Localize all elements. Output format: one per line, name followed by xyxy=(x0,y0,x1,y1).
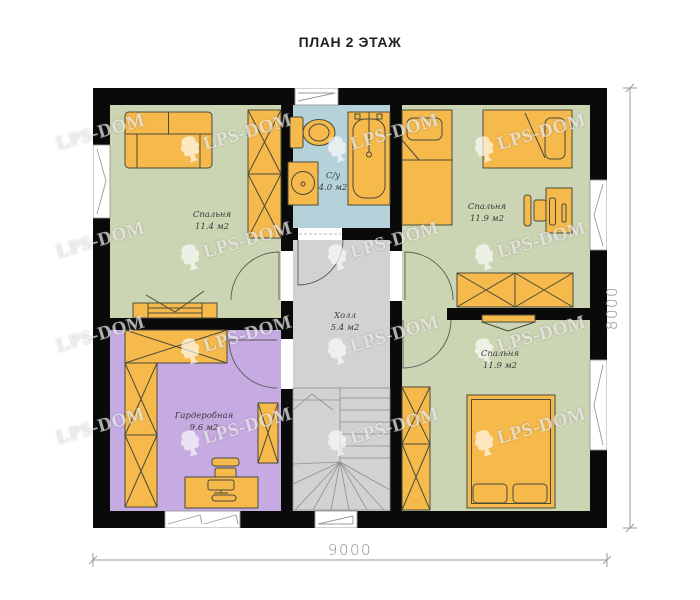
window-icon xyxy=(590,360,607,450)
plan-title: ПЛАН 2 ЭТАЖ xyxy=(299,34,402,50)
wardrobe-icon xyxy=(125,330,227,363)
room-label-bedroom-top-left: Спальня 11.4 м2 xyxy=(193,210,231,234)
wardrobe-icon xyxy=(248,110,281,238)
wardrobe-icon xyxy=(125,363,157,507)
plan-details xyxy=(93,88,607,528)
door-arc xyxy=(229,340,277,388)
room-label-bedroom-bottom-right: Спальня 11.9 м2 xyxy=(481,349,519,373)
stairs-icon xyxy=(293,388,390,510)
window-icon xyxy=(295,88,338,105)
sink-icon xyxy=(288,162,318,205)
wardrobe-icon xyxy=(402,387,430,510)
door-arc xyxy=(403,320,451,368)
room-label-wardrobe: Гардеробная 9.6 м2 xyxy=(175,411,234,435)
tv-stand-icon xyxy=(133,291,217,318)
chair-icon xyxy=(524,195,546,226)
window-icon xyxy=(590,180,607,250)
room-label-bathroom: С/у 4.0 м2 xyxy=(319,171,348,195)
furniture xyxy=(125,110,573,510)
dimension-height-label: 8000 xyxy=(603,286,621,330)
floor-plan-page: ПЛАН 2 ЭТАЖ 9000 8000 xyxy=(0,0,700,600)
bed-icon xyxy=(402,110,452,225)
window-icon xyxy=(165,511,240,528)
sofa-icon xyxy=(125,112,212,168)
door-openings xyxy=(281,228,447,389)
door-arc xyxy=(231,252,279,300)
window-icon xyxy=(315,511,357,528)
tv-icon xyxy=(482,315,535,331)
dimension-width-label: 9000 xyxy=(328,541,372,559)
desk-icon xyxy=(546,188,572,233)
bathtub-icon xyxy=(348,112,390,205)
bed-icon xyxy=(483,110,572,168)
double-bed-icon xyxy=(467,395,555,508)
door-arc xyxy=(405,252,453,300)
door-arc xyxy=(298,240,343,285)
desk-icon xyxy=(185,477,258,508)
window-icon xyxy=(93,145,110,218)
room-label-hall: Холл 5.4 м2 xyxy=(331,311,360,335)
wardrobe-icon xyxy=(258,403,278,463)
wardrobe-icon xyxy=(457,273,573,307)
room-label-bedroom-top-right: Спальня 11.9 м2 xyxy=(468,202,506,226)
toilet-icon xyxy=(290,117,335,148)
floor-plan: Спальня 11.4 м2 С/у 4.0 м2 Спальня 11.9 … xyxy=(93,88,607,528)
chair-icon xyxy=(212,458,239,478)
